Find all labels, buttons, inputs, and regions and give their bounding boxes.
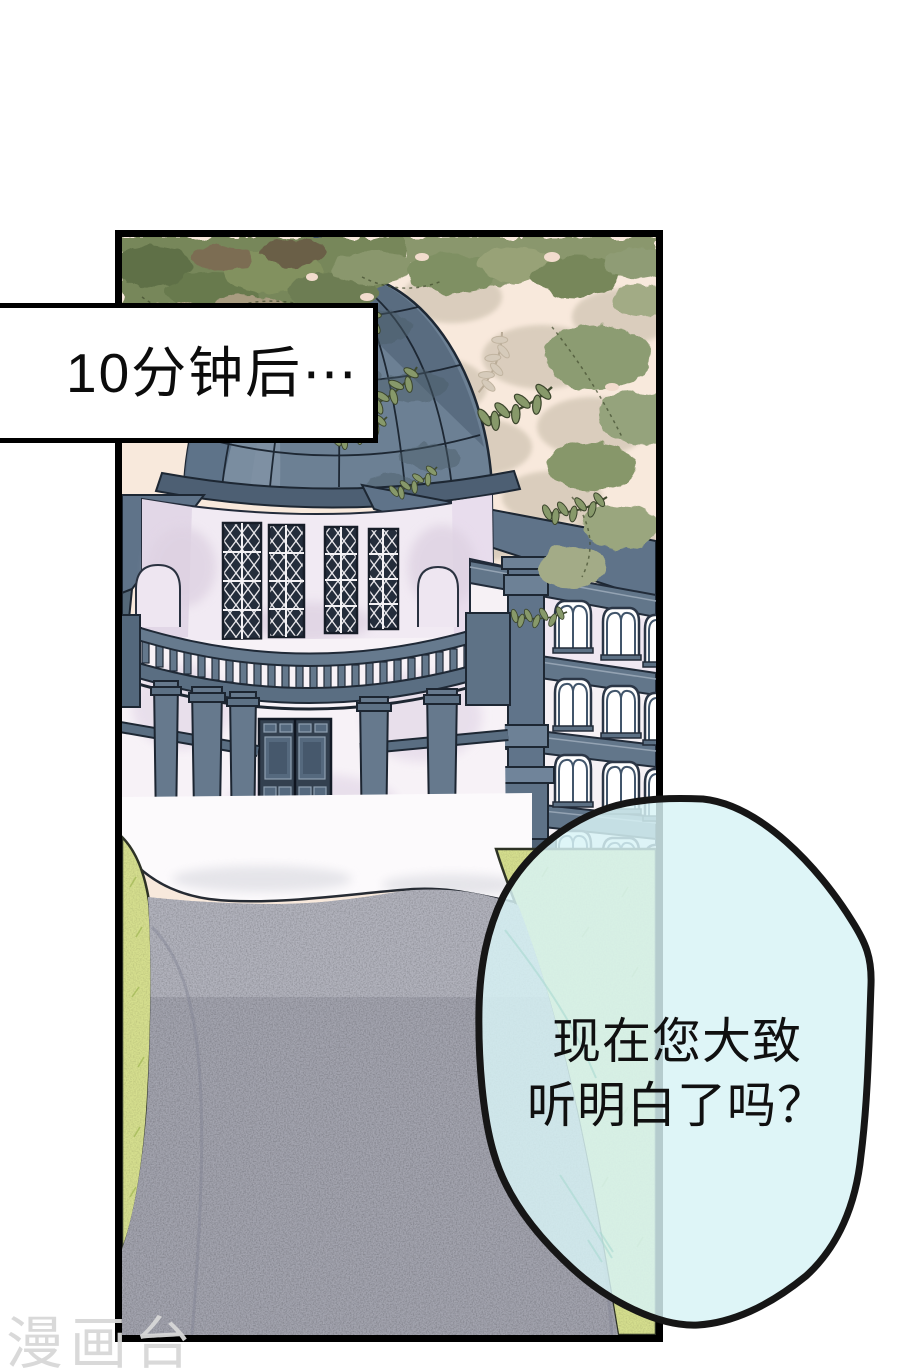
speech-bubble-text: 现在您大致 听明白了吗？ [457,1010,897,1138]
comic-page: 10分钟后⋯ 漫画台 现在您大致 听明白了吗？ [0,0,900,1372]
caption-box: 10分钟后⋯ [0,303,378,443]
watermark: 漫画台 [6,1298,198,1372]
caption-text: 10分钟后⋯ [0,346,359,401]
speech-line-2: 听明白了吗？ [457,1074,897,1138]
speech-line-1: 现在您大致 [457,1010,897,1074]
